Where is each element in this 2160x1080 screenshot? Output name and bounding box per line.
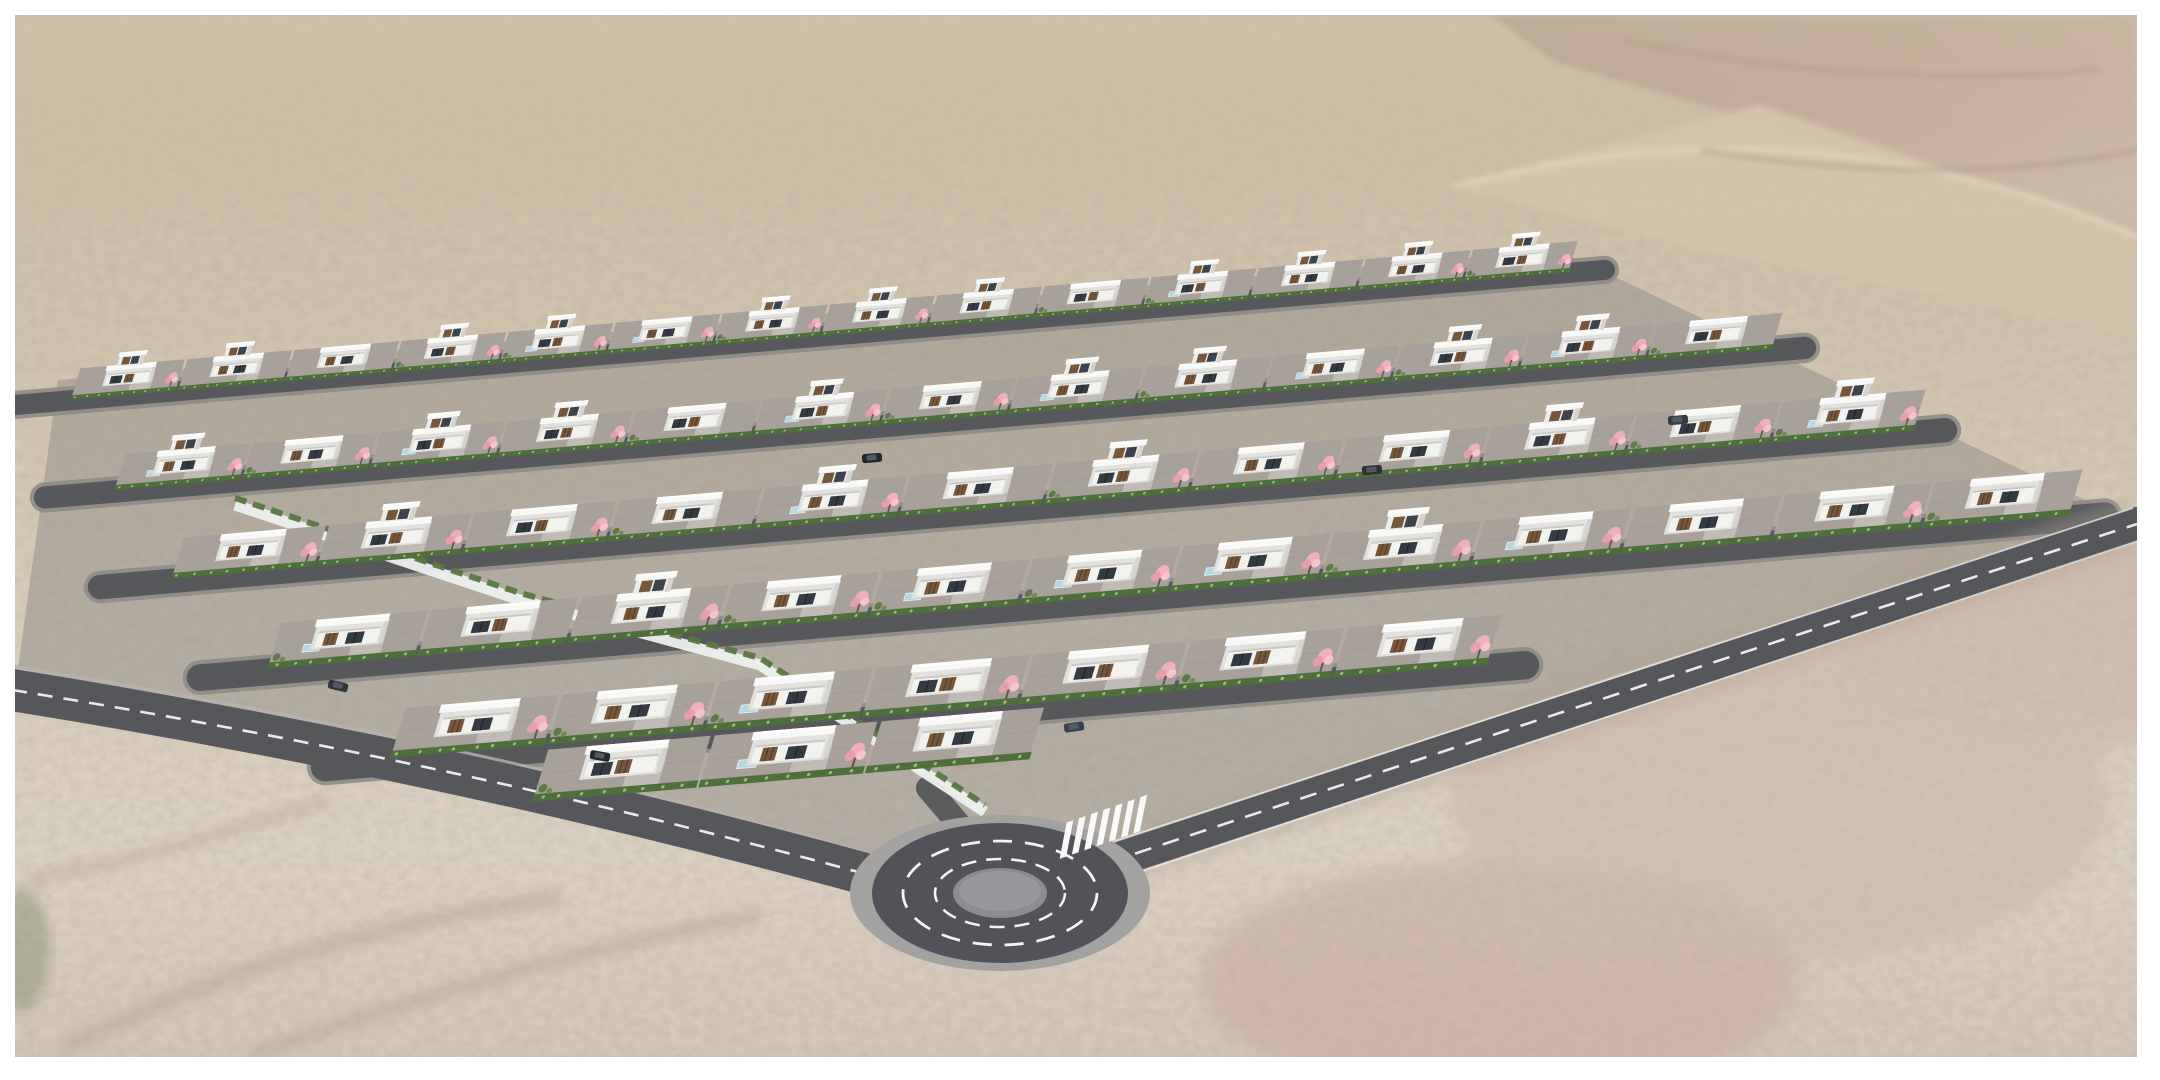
architectural-rendering: [0, 0, 2160, 1080]
roundabout-island-paving: [959, 871, 1041, 911]
roundabout: [850, 815, 1150, 971]
car-roof: [1672, 416, 1682, 422]
car-roof: [1366, 466, 1376, 472]
parked-car: [1362, 465, 1383, 476]
rendering-page: Aerial rendering of a modern white-villa…: [0, 0, 2160, 1080]
car-roof: [866, 454, 876, 460]
distance-haze: [15, 15, 2137, 265]
parked-car: [1668, 415, 1689, 426]
parked-car: [862, 453, 883, 464]
